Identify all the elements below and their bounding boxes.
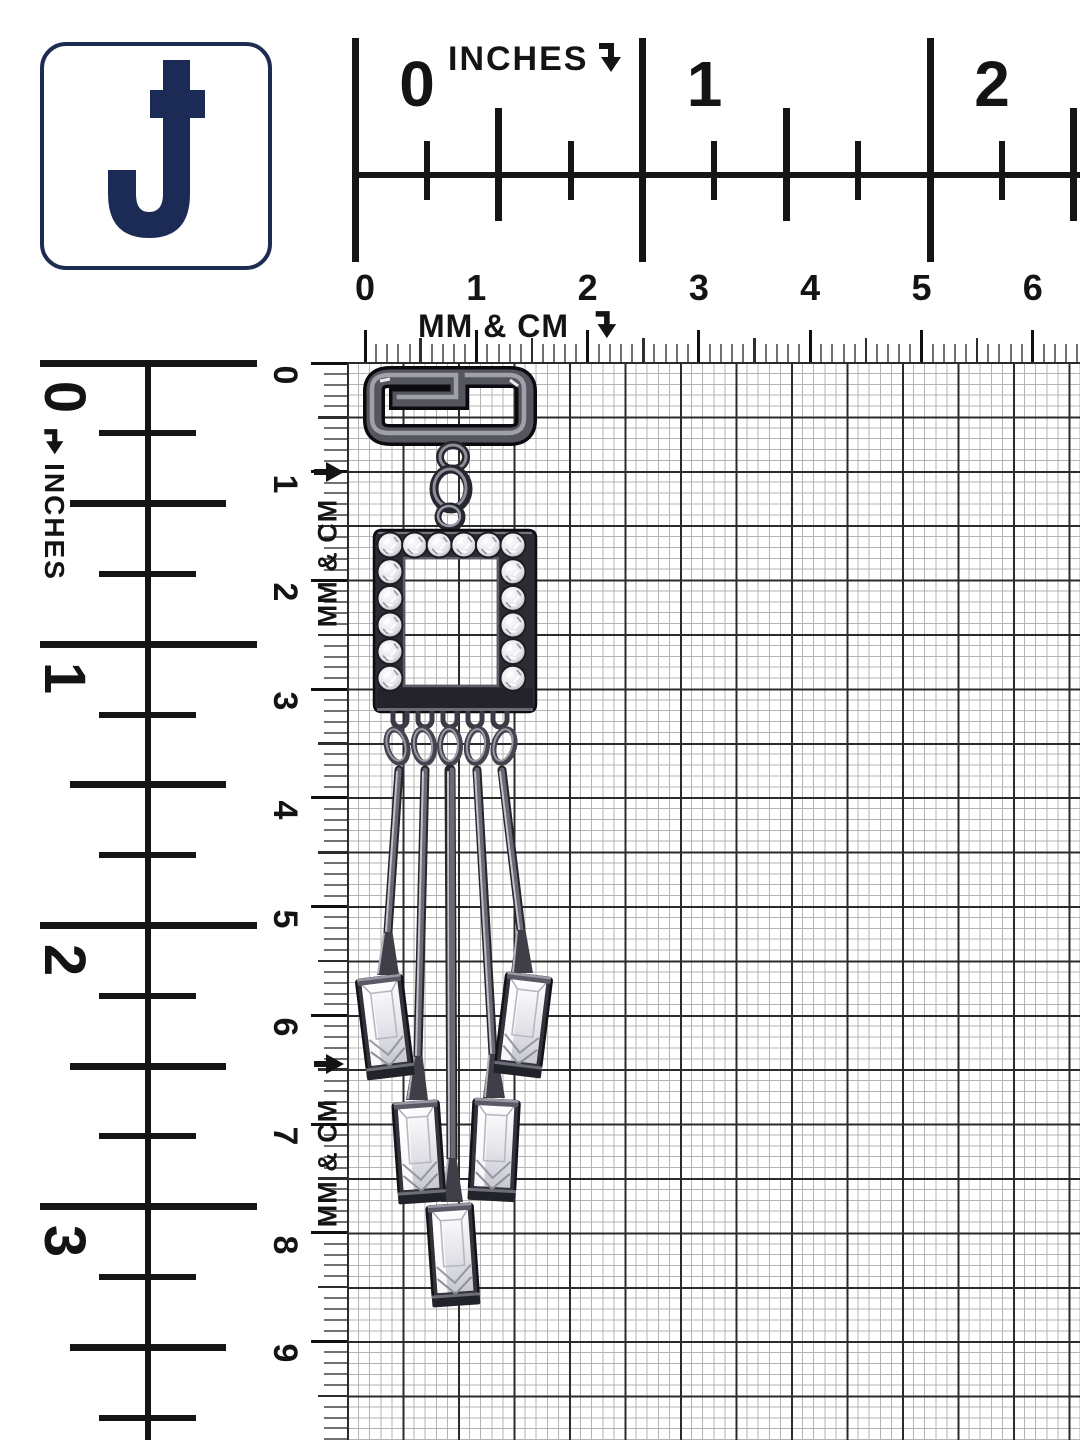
ruler-tick bbox=[386, 344, 388, 362]
top-mm-cm-label: MM & CM bbox=[418, 310, 619, 342]
left-cm-number: 1 bbox=[268, 474, 302, 493]
ruler-tick bbox=[324, 645, 347, 647]
down-arrow-icon bbox=[591, 310, 619, 342]
ruler-tick bbox=[324, 1080, 347, 1082]
ruler-tick bbox=[352, 38, 359, 262]
left-mm-cm-label: MM & CM bbox=[315, 499, 342, 627]
ruler-tick bbox=[311, 362, 347, 365]
top-cm-number: 5 bbox=[911, 270, 931, 306]
ruler-tick bbox=[442, 344, 444, 362]
ruler-tick bbox=[324, 916, 347, 918]
ruler-tick bbox=[498, 344, 500, 362]
brand-logo bbox=[40, 42, 272, 270]
ruler-tick bbox=[324, 753, 347, 755]
ruler-tick bbox=[324, 1351, 347, 1353]
ruler-tick bbox=[324, 764, 347, 766]
ruler-tick bbox=[542, 344, 544, 362]
ruler-tick bbox=[783, 108, 790, 221]
ruler-tick bbox=[720, 344, 722, 362]
ruler-tick bbox=[787, 344, 789, 362]
ruler-tick bbox=[887, 344, 889, 362]
ruler-tick bbox=[687, 344, 689, 362]
ruler-tick bbox=[318, 1286, 347, 1289]
ruler-tick bbox=[509, 344, 511, 362]
ruler-tick bbox=[609, 344, 611, 362]
ruler-tick bbox=[927, 38, 934, 262]
left-cm-number: 0 bbox=[268, 366, 302, 385]
ruler-tick bbox=[843, 344, 845, 362]
ruler-tick bbox=[324, 1373, 347, 1375]
logo-j-icon bbox=[44, 46, 268, 266]
ruler-tick bbox=[575, 344, 577, 362]
ruler-tick bbox=[620, 344, 622, 362]
ruler-tick bbox=[324, 1362, 347, 1364]
ruler-tick bbox=[324, 1297, 347, 1299]
ruler-tick bbox=[324, 1308, 347, 1310]
ruler-tick bbox=[1076, 344, 1078, 362]
top-mm-cm-label-text: MM & CM bbox=[418, 310, 569, 342]
top-cm-number: 1 bbox=[466, 270, 486, 306]
ruler-tick bbox=[324, 1090, 347, 1092]
ruler-tick bbox=[324, 677, 347, 679]
left-mm-cm-label: MM & CM bbox=[315, 1099, 342, 1227]
measurement-template-photo: 012012301234560123456789 INCHES MM & CM … bbox=[0, 0, 1080, 1440]
ruler-tick bbox=[653, 344, 655, 362]
ruler-tick bbox=[809, 330, 812, 362]
ruler-tick bbox=[520, 344, 522, 362]
ruler-tick bbox=[998, 344, 1000, 362]
down-arrow-icon bbox=[594, 42, 624, 76]
ruler-tick bbox=[453, 344, 455, 362]
ruler-tick bbox=[318, 416, 347, 419]
ruler-tick bbox=[318, 1395, 347, 1398]
ruler-tick bbox=[642, 338, 645, 362]
ruler-tick bbox=[553, 344, 555, 362]
ruler-tick bbox=[324, 1417, 347, 1419]
top-cm-number: 0 bbox=[355, 270, 375, 306]
ruler-tick bbox=[965, 344, 967, 362]
ruler-tick bbox=[409, 344, 411, 362]
ruler-tick bbox=[324, 666, 347, 668]
ruler-tick bbox=[324, 862, 347, 864]
ruler-tick bbox=[324, 373, 347, 375]
ruler-tick bbox=[324, 884, 347, 886]
ruler-tick bbox=[697, 330, 700, 362]
ruler-tick bbox=[324, 1003, 347, 1005]
left-ruler-baseline bbox=[145, 360, 151, 1440]
ruler-tick bbox=[324, 710, 347, 712]
ruler-tick bbox=[464, 344, 466, 362]
ruler-tick bbox=[324, 775, 347, 777]
ruler-tick bbox=[999, 141, 1005, 200]
ruler-tick bbox=[397, 344, 399, 362]
left-inches-label: INCHES bbox=[40, 463, 68, 581]
ruler-tick bbox=[765, 344, 767, 362]
ruler-tick bbox=[324, 384, 347, 386]
left-cm-number: 4 bbox=[268, 800, 302, 819]
top-cm-number: 2 bbox=[578, 270, 598, 306]
left-cm-number: 6 bbox=[268, 1018, 302, 1037]
ruler-tick bbox=[364, 330, 367, 362]
ruler-tick bbox=[495, 108, 502, 221]
ruler-tick bbox=[318, 634, 347, 637]
ruler-tick bbox=[798, 344, 800, 362]
ruler-tick bbox=[854, 344, 856, 362]
right-arrow-icon bbox=[312, 460, 346, 484]
ruler-tick bbox=[324, 982, 347, 984]
ruler-tick bbox=[324, 1264, 347, 1266]
ruler-tick bbox=[311, 1231, 347, 1234]
ruler-tick bbox=[665, 344, 667, 362]
ruler-tick bbox=[324, 1047, 347, 1049]
ruler-tick bbox=[709, 344, 711, 362]
ruler-tick bbox=[631, 344, 633, 362]
ruler-tick bbox=[324, 699, 347, 701]
ruler-tick bbox=[324, 1427, 347, 1429]
ruler-tick bbox=[639, 38, 646, 262]
ruler-tick bbox=[324, 829, 347, 831]
left-cm-number: 7 bbox=[268, 1127, 302, 1146]
ruler-tick bbox=[311, 1340, 347, 1343]
top-cm-number: 4 bbox=[800, 270, 820, 306]
top-inches-label-text: INCHES bbox=[448, 42, 588, 76]
ruler-tick bbox=[324, 1254, 347, 1256]
ruler-tick bbox=[324, 1275, 347, 1277]
ruler-tick bbox=[324, 427, 347, 429]
top-inch-number: 1 bbox=[687, 52, 723, 116]
ruler-tick bbox=[909, 344, 911, 362]
ruler-tick bbox=[324, 993, 347, 995]
ruler-tick bbox=[324, 1025, 347, 1027]
ruler-tick bbox=[424, 141, 430, 200]
ruler-tick bbox=[731, 344, 733, 362]
ruler-tick bbox=[324, 927, 347, 929]
ruler-tick bbox=[311, 796, 347, 799]
ruler-tick bbox=[318, 851, 347, 854]
ruler-tick bbox=[324, 405, 347, 407]
top-inch-number: 0 bbox=[399, 52, 435, 116]
ruler-tick bbox=[1010, 344, 1012, 362]
ruler-tick bbox=[898, 344, 900, 362]
ruler-tick bbox=[1031, 330, 1034, 362]
ruler-tick bbox=[375, 344, 377, 362]
ruler-tick bbox=[324, 819, 347, 821]
ruler-tick bbox=[324, 895, 347, 897]
ruler-tick bbox=[987, 344, 989, 362]
left-inch-number: 3 bbox=[35, 1225, 93, 1257]
top-inches-label: INCHES bbox=[448, 42, 624, 76]
ruler-tick bbox=[324, 840, 347, 842]
ruler-tick bbox=[431, 344, 433, 362]
ruler-tick bbox=[324, 1384, 347, 1386]
ruler-tick bbox=[324, 1036, 347, 1038]
ruler-tick bbox=[324, 1243, 347, 1245]
ruler-tick bbox=[486, 344, 488, 362]
ruler-tick bbox=[855, 141, 861, 200]
left-inch-number: 1 bbox=[35, 662, 93, 694]
right-arrow-icon bbox=[312, 1052, 346, 1076]
ruler-tick bbox=[324, 1406, 347, 1408]
ruler-tick bbox=[1043, 344, 1045, 362]
down-arrow-icon bbox=[40, 428, 66, 458]
ruler-tick bbox=[324, 492, 347, 494]
ruler-tick bbox=[742, 344, 744, 362]
ruler-tick bbox=[1054, 344, 1056, 362]
top-inch-number: 2 bbox=[974, 52, 1010, 116]
ruler-tick bbox=[324, 971, 347, 973]
ruler-tick bbox=[711, 141, 717, 200]
top-cm-number: 6 bbox=[1023, 270, 1043, 306]
ruler-tick bbox=[676, 344, 678, 362]
top-cm-number: 3 bbox=[689, 270, 709, 306]
ruler-tick bbox=[920, 330, 923, 362]
ruler-tick bbox=[318, 960, 347, 963]
ruler-tick bbox=[568, 141, 574, 200]
ruler-tick bbox=[324, 938, 347, 940]
left-cm-number: 3 bbox=[268, 692, 302, 711]
ruler-tick bbox=[820, 344, 822, 362]
ruler-tick bbox=[324, 438, 347, 440]
ruler-tick bbox=[324, 786, 347, 788]
ruler-tick bbox=[776, 344, 778, 362]
graph-paper-grid bbox=[347, 362, 1080, 1440]
ruler-tick bbox=[876, 344, 878, 362]
ruler-tick bbox=[324, 656, 347, 658]
ruler-tick bbox=[324, 1319, 347, 1321]
left-cm-number: 2 bbox=[268, 583, 302, 602]
left-cm-number: 8 bbox=[268, 1235, 302, 1254]
ruler-tick bbox=[324, 721, 347, 723]
ruler-tick bbox=[311, 905, 347, 908]
ruler-tick bbox=[943, 344, 945, 362]
left-cm-number: 9 bbox=[268, 1344, 302, 1363]
left-inch-number: 0 bbox=[35, 381, 93, 413]
ruler-tick bbox=[865, 338, 868, 362]
ruler-tick bbox=[976, 338, 979, 362]
ruler-tick bbox=[831, 344, 833, 362]
left-cm-number: 5 bbox=[268, 909, 302, 928]
top-ruler-baseline bbox=[352, 172, 1080, 178]
ruler-tick bbox=[753, 338, 756, 362]
ruler-tick bbox=[324, 949, 347, 951]
ruler-tick bbox=[1065, 344, 1067, 362]
ruler-tick bbox=[932, 344, 934, 362]
ruler-tick bbox=[324, 873, 347, 875]
ruler-tick bbox=[564, 344, 566, 362]
ruler-tick bbox=[1021, 344, 1023, 362]
ruler-tick bbox=[318, 742, 347, 745]
ruler-tick bbox=[324, 732, 347, 734]
ruler-tick bbox=[311, 1014, 347, 1017]
left-inch-number: 2 bbox=[35, 943, 93, 975]
ruler-tick bbox=[324, 1330, 347, 1332]
ruler-tick bbox=[954, 344, 956, 362]
ruler-tick bbox=[311, 688, 347, 691]
ruler-tick bbox=[324, 808, 347, 810]
ruler-tick bbox=[324, 449, 347, 451]
ruler-tick bbox=[598, 344, 600, 362]
ruler-tick bbox=[1070, 108, 1077, 221]
ruler-tick bbox=[324, 395, 347, 397]
